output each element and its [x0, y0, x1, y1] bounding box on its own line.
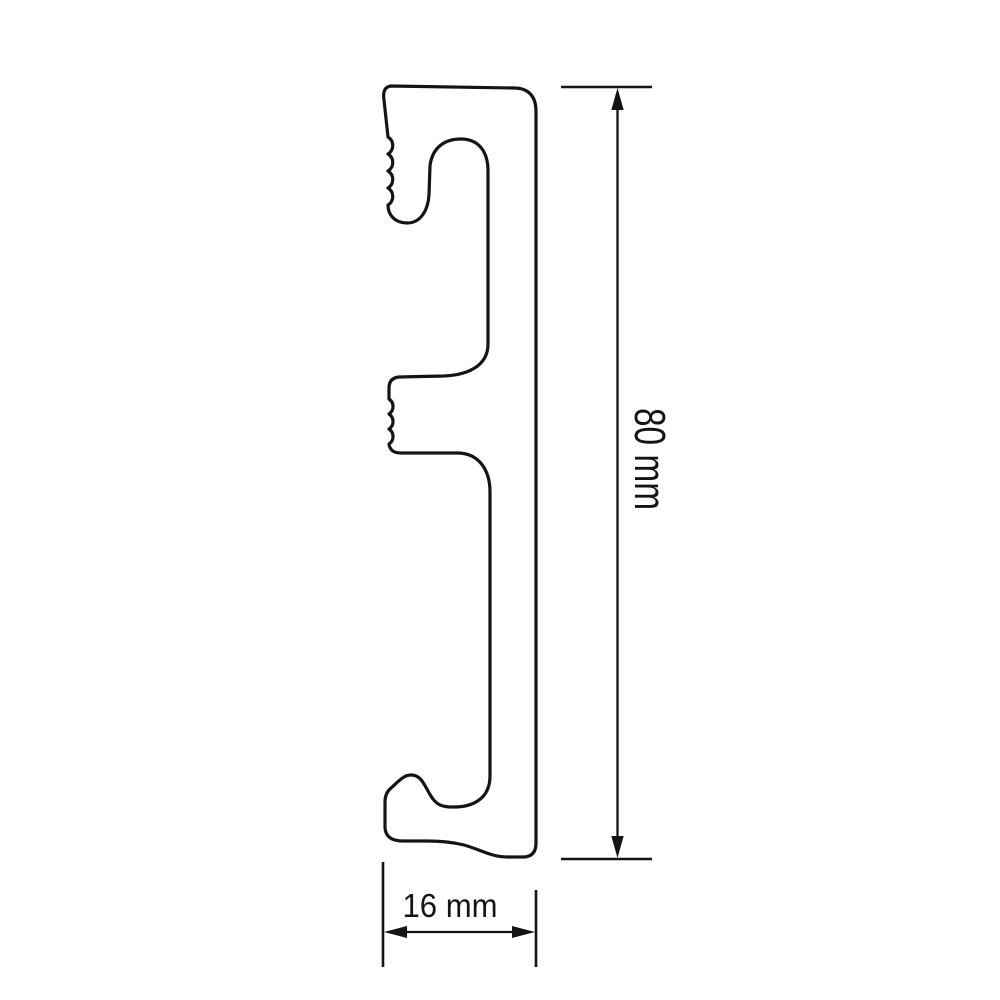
width-dimension: 16 mm — [383, 862, 536, 967]
width-dimension-label: 16 mm — [403, 887, 498, 924]
technical-drawing-page: 80 mm 16 mm — [0, 0, 1000, 1000]
arrowhead-left-icon — [384, 926, 407, 938]
profile-cross-section-outline — [384, 86, 536, 857]
height-dimension-label: 80 mm — [625, 408, 674, 510]
arrowhead-down-icon — [611, 836, 623, 858]
arrowhead-up-icon — [611, 88, 623, 110]
profile-drawing-canvas: 80 mm 16 mm — [0, 0, 1000, 1000]
height-dimension: 80 mm — [561, 87, 674, 859]
arrowhead-right-icon — [512, 926, 535, 938]
